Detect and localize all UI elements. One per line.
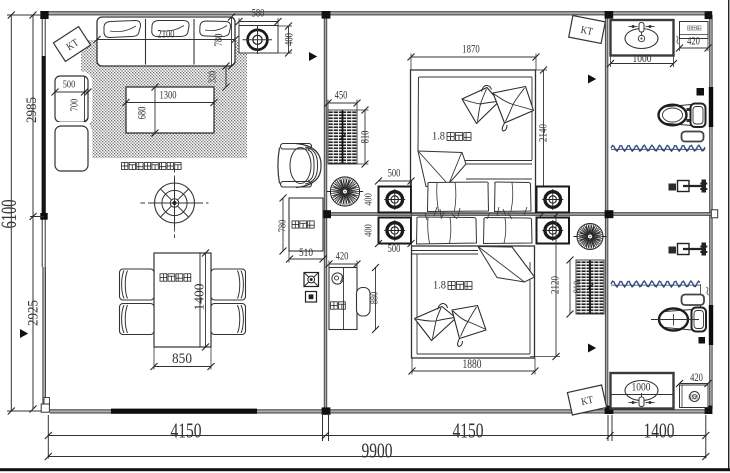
svg-text:1000: 1000: [633, 51, 652, 65]
svg-text:2925: 2925: [26, 300, 42, 326]
svg-text:1.8: 1.8: [433, 280, 446, 292]
svg-text:1.8: 1.8: [432, 131, 445, 143]
svg-text:400: 400: [363, 193, 375, 206]
svg-text:700: 700: [69, 98, 81, 111]
svg-text:2140: 2140: [536, 124, 550, 142]
svg-text:4150: 4150: [171, 419, 202, 443]
svg-text:500: 500: [388, 168, 401, 180]
svg-text:1300: 1300: [160, 90, 177, 102]
svg-text:9900: 9900: [362, 439, 393, 463]
svg-text:2985: 2985: [24, 97, 40, 123]
svg-text:1880: 1880: [463, 356, 482, 371]
svg-text:400: 400: [363, 224, 375, 237]
svg-text:850: 850: [172, 351, 192, 367]
svg-text:880: 880: [369, 291, 381, 304]
svg-text:510: 510: [299, 245, 313, 259]
svg-text:420: 420: [690, 372, 703, 384]
svg-text:500: 500: [388, 243, 401, 255]
svg-text:6100: 6100: [0, 200, 21, 229]
svg-text:420: 420: [687, 36, 700, 48]
svg-text:420: 420: [336, 251, 349, 263]
svg-text:400: 400: [284, 33, 296, 46]
svg-text:500: 500: [63, 79, 76, 91]
svg-text:810: 810: [360, 130, 372, 143]
svg-text:810: 810: [572, 280, 584, 293]
svg-text:1400: 1400: [192, 283, 207, 310]
svg-text:320: 320: [207, 71, 219, 83]
svg-text:780: 780: [277, 219, 289, 232]
svg-text:4150: 4150: [453, 419, 484, 443]
svg-text:2100: 2100: [158, 29, 175, 41]
svg-text:450: 450: [335, 90, 348, 102]
svg-text:680: 680: [137, 106, 149, 119]
svg-text:1000: 1000: [632, 380, 651, 394]
svg-text:1400: 1400: [644, 419, 675, 443]
svg-text:2120: 2120: [548, 276, 562, 294]
svg-text:780: 780: [213, 33, 225, 46]
svg-text:1870: 1870: [462, 44, 480, 56]
svg-text:580: 580: [252, 8, 265, 20]
